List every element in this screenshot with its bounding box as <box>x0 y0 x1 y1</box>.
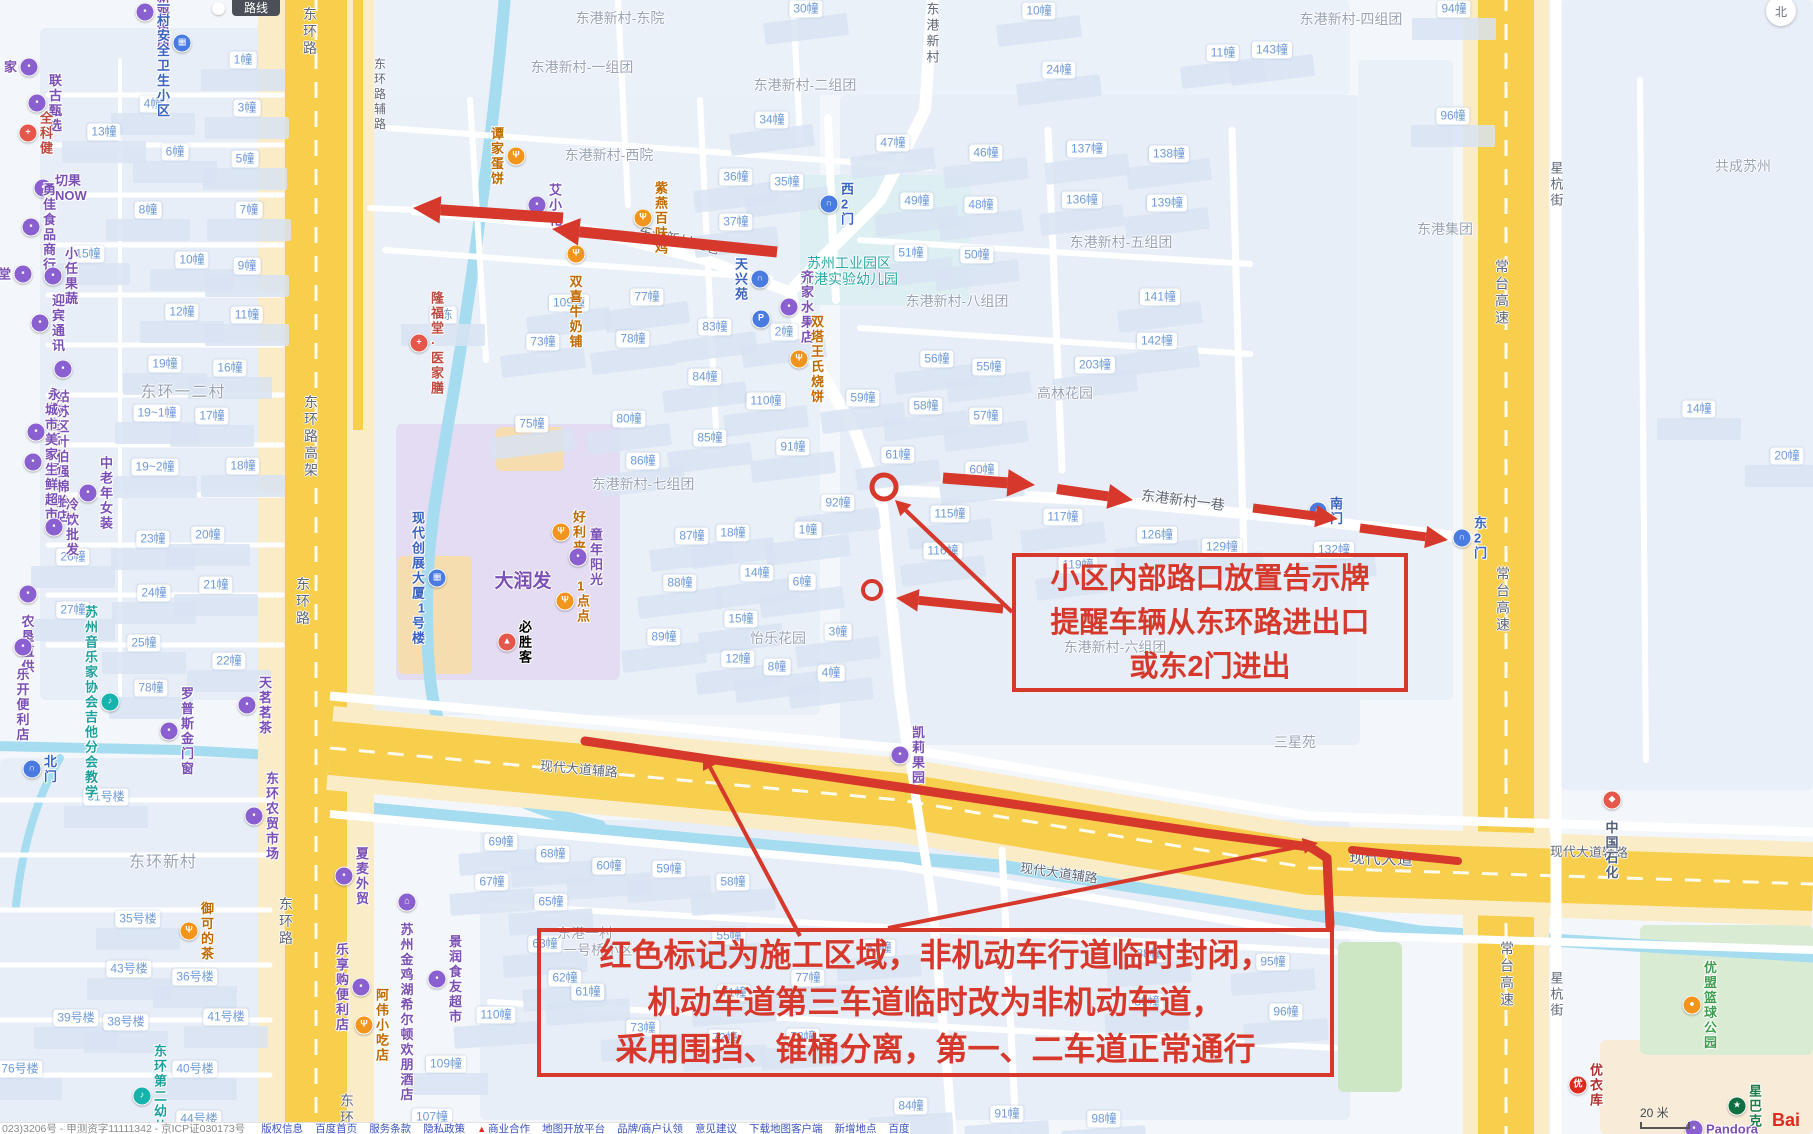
poi-label: Pandora <box>1706 1122 1758 1134</box>
gate-poi-icon: ∩ <box>751 270 770 289</box>
building-label: 110幢 <box>746 393 785 410</box>
footer-link[interactable]: 品牌/商户认领 <box>617 1123 683 1134</box>
road-label: 星杭街 <box>1547 971 1566 1019</box>
road-label: 现代大道辅路 <box>539 755 618 781</box>
gas-poi-icon: ◆ <box>1603 791 1622 810</box>
shop-poi-icon: ▪ <box>136 3 155 22</box>
building-label: 91幢 <box>990 1106 1023 1123</box>
poi-label: 1点点 <box>577 579 590 624</box>
building-label: 84幢 <box>688 369 721 386</box>
shop-poi-icon: ▪ <box>569 548 588 567</box>
food-poi-icon: Ψ <box>567 245 586 264</box>
poi-label: 乐享购便利店 <box>336 942 349 1032</box>
building-label: 78幢 <box>134 680 167 697</box>
poi-label: 东环一村安全 卫生小区 <box>157 0 170 118</box>
building-label: 12幢 <box>165 304 198 321</box>
scale-bar <box>1640 1122 1690 1129</box>
building-label: 37幢 <box>719 214 752 231</box>
building-label: 14幢 <box>1682 401 1715 418</box>
area-label: 苏州工业园区 东港实验幼儿园 <box>800 255 898 287</box>
building-label: 58幢 <box>909 398 942 415</box>
road-label: 常台高速 <box>1497 941 1517 1009</box>
building-label: 19~1幢 <box>133 405 180 422</box>
building-label: 87幢 <box>675 528 708 545</box>
building-label: 89幢 <box>647 629 680 646</box>
building-label: 10幢 <box>1022 3 1055 20</box>
poi-label: 中老年女装 <box>100 456 113 531</box>
food-poi-icon: Ψ <box>556 592 575 611</box>
building-label: 88幢 <box>663 575 696 592</box>
shop-poi-icon: ▪ <box>79 484 98 503</box>
building-label: 138幢 <box>1149 146 1189 163</box>
building-label: 1幢 <box>795 522 822 539</box>
poi-label: 北门 <box>44 754 57 784</box>
building-label: 43号楼 <box>106 961 151 978</box>
building-label: 36号楼 <box>172 969 217 986</box>
poi-label: 苏州音乐家协会 吉他分会教学 <box>85 605 98 800</box>
building-label: 24幢 <box>137 585 170 602</box>
building-label: 92幢 <box>821 495 854 512</box>
annotation-box-construction-notice: 红色标记为施工区域，非机动车行道临时封闭， 机动车道第三车道临时改为非机动车道，… <box>537 928 1334 1077</box>
gov-poi-icon: ▦ <box>173 34 192 53</box>
building-label: 25幢 <box>127 635 160 652</box>
footer-link[interactable]: 百度首页 <box>315 1123 357 1134</box>
building-label: 30幢 <box>789 1 822 18</box>
building-label: 59幢 <box>846 390 879 407</box>
food-poi-icon: Ψ <box>552 523 571 542</box>
scale-label: 20 米 <box>1640 1106 1669 1120</box>
area-label: 共成苏州 <box>1715 158 1771 174</box>
building-label: 6幢 <box>789 574 816 591</box>
food-poi-icon: Ψ <box>507 147 526 166</box>
building-label: 65幢 <box>534 894 567 911</box>
map-canvas[interactable]: 1幢4幢3幢13幢6幢5幢8幢7幢15幢10幢9幢12幢11幢19幢16幢19~… <box>0 0 1813 1134</box>
area-label: 东港新村-一组团 <box>531 59 634 75</box>
edu-poi-icon: ♪ <box>133 1087 152 1106</box>
shop-poi-icon: ▪ <box>20 58 39 77</box>
poi-label: 艾小花 <box>549 183 562 228</box>
build-poi-icon: ▦ <box>428 569 447 588</box>
annotation-text-line: 或东2门进出 <box>1016 645 1404 689</box>
shop-poi-icon: ▪ <box>428 970 447 989</box>
poi-label: 勇佳食品商行 <box>43 182 56 272</box>
building-label: 57幢 <box>969 408 1002 425</box>
poi-label: 紫燕百味鸡 <box>655 181 668 256</box>
building-label: 12幢 <box>721 651 754 668</box>
building-label: 41号楼 <box>203 1009 248 1026</box>
building-label: 58幢 <box>716 874 749 891</box>
shop-poi-icon: ▪ <box>14 265 33 284</box>
area-label: 东港新村-五组团 <box>1070 234 1173 250</box>
building-label: 109幢 <box>426 1056 466 1073</box>
building-label: 94幢 <box>1437 1 1470 18</box>
shop-poi-icon: ▪ <box>44 267 63 286</box>
building-label: 117幢 <box>1043 509 1082 526</box>
building-label: 60幢 <box>965 462 998 479</box>
building-label: 40号楼 <box>172 1061 217 1078</box>
food-poi-icon: Ψ <box>634 209 653 228</box>
building-label: 59幢 <box>652 861 685 878</box>
road-label: 现代大道辅路 <box>1019 857 1099 887</box>
coffee-poi-icon: ★ <box>1728 1097 1747 1116</box>
building-label: 85幢 <box>693 430 726 447</box>
map-control-dot[interactable] <box>212 2 225 15</box>
building-label: 80幢 <box>612 411 645 428</box>
building-label: 46幢 <box>969 145 1002 162</box>
shop-poi-icon: ▪ <box>45 518 64 537</box>
pizza-poi-icon: ▲ <box>498 633 517 652</box>
footer-link[interactable]: 百度营销 <box>889 1123 910 1134</box>
area-label: 东港新村-四组团 <box>1300 11 1403 27</box>
hotel-poi-icon: ⌂ <box>398 893 417 912</box>
building-label: 76号楼 <box>0 1061 43 1078</box>
area-label: 东环一二村 <box>140 385 225 401</box>
road-label: 常台高速 <box>1493 566 1513 634</box>
shop-poi-icon: ▪ <box>31 314 50 333</box>
building-label: 116幢 <box>923 543 962 560</box>
annotation-text-line: 提醒车辆从东环路进出口 <box>1016 601 1404 645</box>
building-label: 24幢 <box>1042 62 1075 79</box>
poi-label: 必胜客 <box>519 620 532 665</box>
building-label: 4幢 <box>818 665 845 682</box>
road-label: 东港新村二巷 <box>636 221 722 259</box>
poi-label: 南门 <box>1330 496 1343 526</box>
poi-label: 小任果蔬 <box>65 246 78 306</box>
footer-link[interactable]: 版权信息 <box>261 1123 303 1134</box>
poi-label: 切果NOW <box>55 173 87 203</box>
building-label: 20幢 <box>1770 448 1803 465</box>
building-label: 86幢 <box>626 453 659 470</box>
poi-label: 天兴苑 <box>735 257 748 302</box>
poi-label: 夏麦外贸 <box>356 846 369 906</box>
uniqlo-poi-icon: 优 <box>1569 1076 1588 1095</box>
building-label: 1幢 <box>230 52 257 69</box>
footer-link[interactable]: 新增地点 <box>835 1123 877 1134</box>
poi-label: 迎宾通讯 <box>52 293 65 353</box>
annotation-text-line: 小区内部路口放置告示牌 <box>1016 557 1404 601</box>
shop-poi-icon: ▪ <box>891 746 910 765</box>
building-label: 22幢 <box>212 653 245 670</box>
annotation-box-internal-signs: 小区内部路口放置告示牌 提醒车辆从东环路进出口 或东2门进出 <box>1012 553 1408 692</box>
building-label: 11幢 <box>231 307 263 324</box>
area-label: 东港新村-二组团 <box>754 77 857 93</box>
poi-label: 全科健 <box>40 111 53 156</box>
road-label: 东环路辅路 <box>372 58 389 133</box>
building-label: 3幢 <box>234 100 261 117</box>
poi-label: 天茗茗茶 <box>259 675 272 735</box>
poi-label: 隆福堂·医家膳 <box>431 291 444 396</box>
poi-label: 西2门 <box>841 182 854 227</box>
building-label: 69幢 <box>484 834 517 851</box>
footer-link[interactable]: 服务条款 <box>369 1123 411 1134</box>
building-label: 3幢 <box>825 624 852 641</box>
poi-label: 东环第二幼儿园 <box>154 1044 167 1134</box>
annotation-text-line: 机动车道第三车道临时改为非机动车道， <box>541 979 1330 1026</box>
building-label: 98幢 <box>1087 1111 1120 1128</box>
road-label: 现代大道 <box>1349 844 1414 870</box>
shop-poi-icon: ▪ <box>19 585 38 604</box>
building-label: 126幢 <box>1137 527 1177 544</box>
poi-label: 苏州金鸡湖希尔顿 欢朋酒店 <box>400 922 413 1102</box>
building-label: 143幢 <box>1252 42 1292 59</box>
road-label: 东港新村 <box>923 2 942 66</box>
poi-label: 优盟篮球公园 <box>1704 960 1717 1050</box>
building-label: 68幢 <box>536 846 569 863</box>
poi-label: 双塔王氏烧饼 <box>811 314 824 404</box>
area-label: 怡乐花园 <box>750 630 806 646</box>
route-button[interactable]: 路线 <box>232 0 280 16</box>
building-label: 83幢 <box>698 319 731 336</box>
sport-poi-icon: ● <box>1683 996 1702 1015</box>
poi-label: 谭家蛋饼 <box>491 126 504 186</box>
parking-poi-icon: P <box>752 310 771 329</box>
building-label: 137幢 <box>1067 141 1107 158</box>
building-label: 67幢 <box>475 874 508 891</box>
shop-poi-icon: ▪ <box>335 867 354 886</box>
building-label: 56幢 <box>920 351 953 368</box>
building-label: 78幢 <box>616 331 649 348</box>
poi-label: 优衣库 <box>1590 1063 1603 1108</box>
footer-bar: 023)3206号 - 甲测资字11111342 - 京ICP证030173号 … <box>0 1122 910 1134</box>
road-label: 东环路 <box>276 897 296 948</box>
building-label: 203幢 <box>1075 357 1115 374</box>
building-label: 8幢 <box>764 659 791 676</box>
building-label: 11幢 <box>1207 45 1239 62</box>
building-label: 16幢 <box>213 360 246 377</box>
footer-link[interactable]: 地图开放平台 <box>542 1123 605 1134</box>
area-label: 东环新村 <box>129 855 197 871</box>
shop-poi-icon: ▪ <box>245 807 264 826</box>
road-label: 常台高速 <box>1492 259 1512 327</box>
building-label: 9幢 <box>234 258 261 275</box>
building-label: 6幢 <box>162 144 189 161</box>
building-label: 21幢 <box>199 577 232 594</box>
shop-poi-icon: ▪ <box>528 196 547 215</box>
poi-label: 双喜牛奶铺 <box>569 274 582 349</box>
building-label: 35号楼 <box>115 911 160 928</box>
area-label: 东港新村-八组团 <box>906 293 1009 309</box>
building-label: 91幢 <box>776 439 809 456</box>
icp-text: 023)3206号 - 甲测资字11111342 - 京ICP证030173号 <box>2 1123 245 1134</box>
annotation-text-line: 采用围挡、锥桶分离，第一、二车道正常通行 <box>541 1026 1330 1073</box>
shop-poi-icon: ▪ <box>780 298 799 317</box>
poi-label: 童年阳光 <box>590 527 603 587</box>
building-label: 84幢 <box>894 1098 927 1115</box>
flame-icon: ▲ <box>477 1124 486 1134</box>
gate-poi-icon: ∩ <box>1309 502 1328 521</box>
footer-link[interactable]: 意见建议 <box>695 1123 737 1134</box>
area-label: 东港新村-七组团 <box>592 476 695 492</box>
road-label: 东环路高架 <box>301 395 321 480</box>
shop-poi-icon: ▪ <box>14 638 33 657</box>
building-label: 50幢 <box>960 247 993 264</box>
poi-label: 凯莉果园 <box>912 725 925 785</box>
building-label: 18幢 <box>716 525 749 542</box>
annotation-text-line: 红色标记为施工区域，非机动车行道临时封闭， <box>541 932 1330 979</box>
building-label: 73幢 <box>526 334 559 351</box>
building-label: 96幢 <box>1436 108 1469 125</box>
shop-poi-icon: ▪ <box>27 423 46 442</box>
shop-poi-icon: ▪ <box>352 978 371 997</box>
poi-label: 景润食友超市 <box>449 934 462 1024</box>
map-scale: 20 米 <box>1640 1104 1690 1129</box>
building-label: 38号楼 <box>103 1014 148 1031</box>
gate-poi-icon: ∩ <box>23 760 42 779</box>
building-label: 15幢 <box>724 611 757 628</box>
poi-label: 东2门 <box>1474 516 1487 561</box>
building-label: 36幢 <box>719 169 752 186</box>
building-label: 2幢 <box>771 324 798 341</box>
building-label: 47幢 <box>876 135 909 152</box>
poi-label: 御可的茶 <box>201 901 214 961</box>
poi-label: 冷饮批发 <box>66 497 79 557</box>
building-label: 17幢 <box>195 408 228 425</box>
area-label: 东港新村-西院 <box>565 147 654 163</box>
building-label: 77幢 <box>630 289 663 306</box>
shop-poi-icon: ▪ <box>24 453 43 472</box>
area-label: 高林花园 <box>1037 385 1093 401</box>
poi-label: 家 <box>4 60 17 75</box>
area-label: 三星苑 <box>1274 734 1316 750</box>
area-label: 大润发 <box>494 574 551 590</box>
building-label: 51幢 <box>894 245 927 262</box>
shop-poi-icon: ▪ <box>54 360 73 379</box>
building-label: 5幢 <box>232 151 259 168</box>
food-poi-icon: Ψ <box>180 922 199 941</box>
gate-poi-icon: ∩ <box>820 195 839 214</box>
poi-label: 中国石化 <box>1605 820 1618 880</box>
building-label: 13幢 <box>87 124 120 141</box>
area-label: 东港新村-东院 <box>576 10 665 26</box>
building-label: 142幢 <box>1137 333 1177 350</box>
edu-poi-icon: ♪ <box>101 693 120 712</box>
building-label: 8幢 <box>135 202 162 219</box>
poi-label: 乐开便利店 <box>16 667 29 742</box>
building-label: 110幢 <box>476 1007 515 1024</box>
gate-poi-icon: ∩ <box>1453 529 1472 548</box>
poi-label: 东环农贸市场 <box>266 771 279 861</box>
shop-poi-icon: ▪ <box>238 696 257 715</box>
poi-label: 现代创展 大厦1号楼 <box>412 511 425 646</box>
building-label: 49幢 <box>900 193 933 210</box>
footer-links: 版权信息百度首页服务条款隐私政策▲商业合作地图开放平台品牌/商户认领意见建议下载… <box>261 1123 910 1134</box>
building-label: 141幢 <box>1140 289 1180 306</box>
baidu-logo: Bai <box>1772 1110 1800 1131</box>
road-label: 东环路 <box>300 7 320 58</box>
poi-label: 阿伟小吃店 <box>376 988 389 1063</box>
building-label: 139幢 <box>1147 195 1187 212</box>
building-label: 39号楼 <box>53 1010 98 1027</box>
building-label: 18幢 <box>226 458 259 475</box>
building-label: 19~2幢 <box>131 459 178 476</box>
building-label: 61幢 <box>881 447 914 464</box>
poi-label: 城市美家 生鲜超市 <box>45 402 58 522</box>
footer-link[interactable]: 下载地图客户端 <box>749 1123 823 1134</box>
building-label: 75幢 <box>515 416 548 433</box>
road-label: 星杭街 <box>1547 161 1566 209</box>
building-label: 60幢 <box>592 858 625 875</box>
building-label: 55幢 <box>972 359 1005 376</box>
food-poi-icon: Ψ <box>790 350 809 369</box>
building-label: 10幢 <box>175 252 208 269</box>
building-label: 115幢 <box>930 506 969 523</box>
area-label: 东港集团 <box>1417 221 1473 237</box>
footer-link[interactable]: 隐私政策 <box>423 1123 465 1134</box>
food-poi-icon: Ψ <box>355 1016 374 1035</box>
med-poi-icon: + <box>19 124 38 143</box>
road-label: 东港新村一巷 <box>1140 485 1226 515</box>
building-label: 7幢 <box>236 202 263 219</box>
shop-poi-icon: ▪ <box>160 722 179 741</box>
med-poi-icon: + <box>410 334 429 353</box>
building-label: 35幢 <box>770 174 803 191</box>
building-label: 20幢 <box>191 527 224 544</box>
building-label: 48幢 <box>964 197 997 214</box>
building-label: 14幢 <box>740 565 773 582</box>
building-label: 23幢 <box>136 531 169 548</box>
poi-label: 堂 <box>0 267 11 282</box>
shop-poi-icon: ▪ <box>22 218 41 237</box>
poi-label: 罗普斯金门窗 <box>181 686 194 776</box>
building-label: 34幢 <box>755 112 788 129</box>
building-label: 136幢 <box>1062 192 1102 209</box>
footer-link[interactable]: 商业合作 <box>488 1123 530 1134</box>
building-label: 19幢 <box>148 356 181 373</box>
road-label: 东环路 <box>293 577 313 628</box>
